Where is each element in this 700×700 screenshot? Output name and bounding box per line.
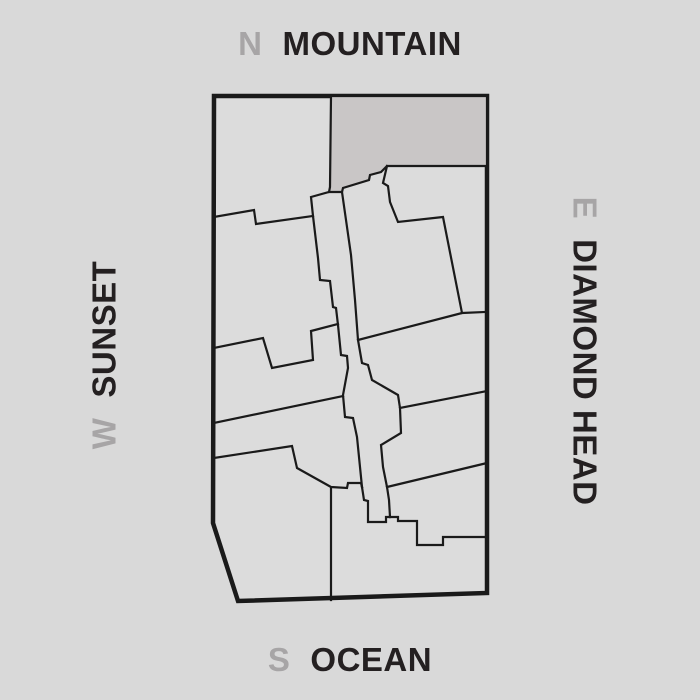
parcel-map [0, 0, 700, 700]
site-map-page: N MOUNTAIN W SUNSET E DIAMOND HEAD S OCE… [0, 0, 700, 700]
